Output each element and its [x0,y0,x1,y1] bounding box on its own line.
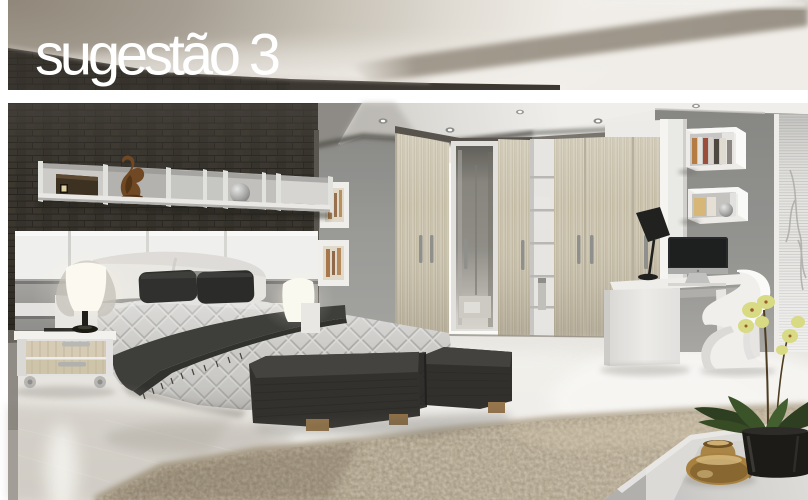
svg-text:sugestão 3: sugestão 3 [35,23,281,88]
